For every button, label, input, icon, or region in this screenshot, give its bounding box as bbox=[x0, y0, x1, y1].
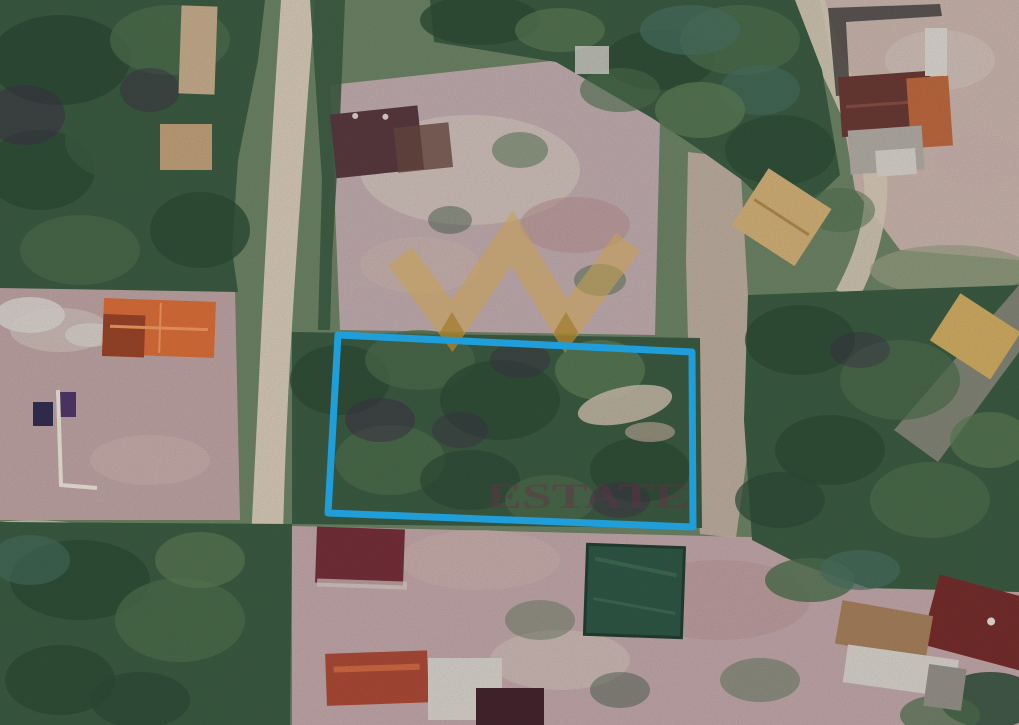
satellite-map[interactable]: ESTATE bbox=[0, 0, 1019, 725]
watermark-text: ESTATE bbox=[486, 476, 690, 516]
satellite-image-viewport: ESTATE bbox=[0, 0, 1019, 725]
photo-noise-overlay bbox=[0, 0, 1019, 725]
